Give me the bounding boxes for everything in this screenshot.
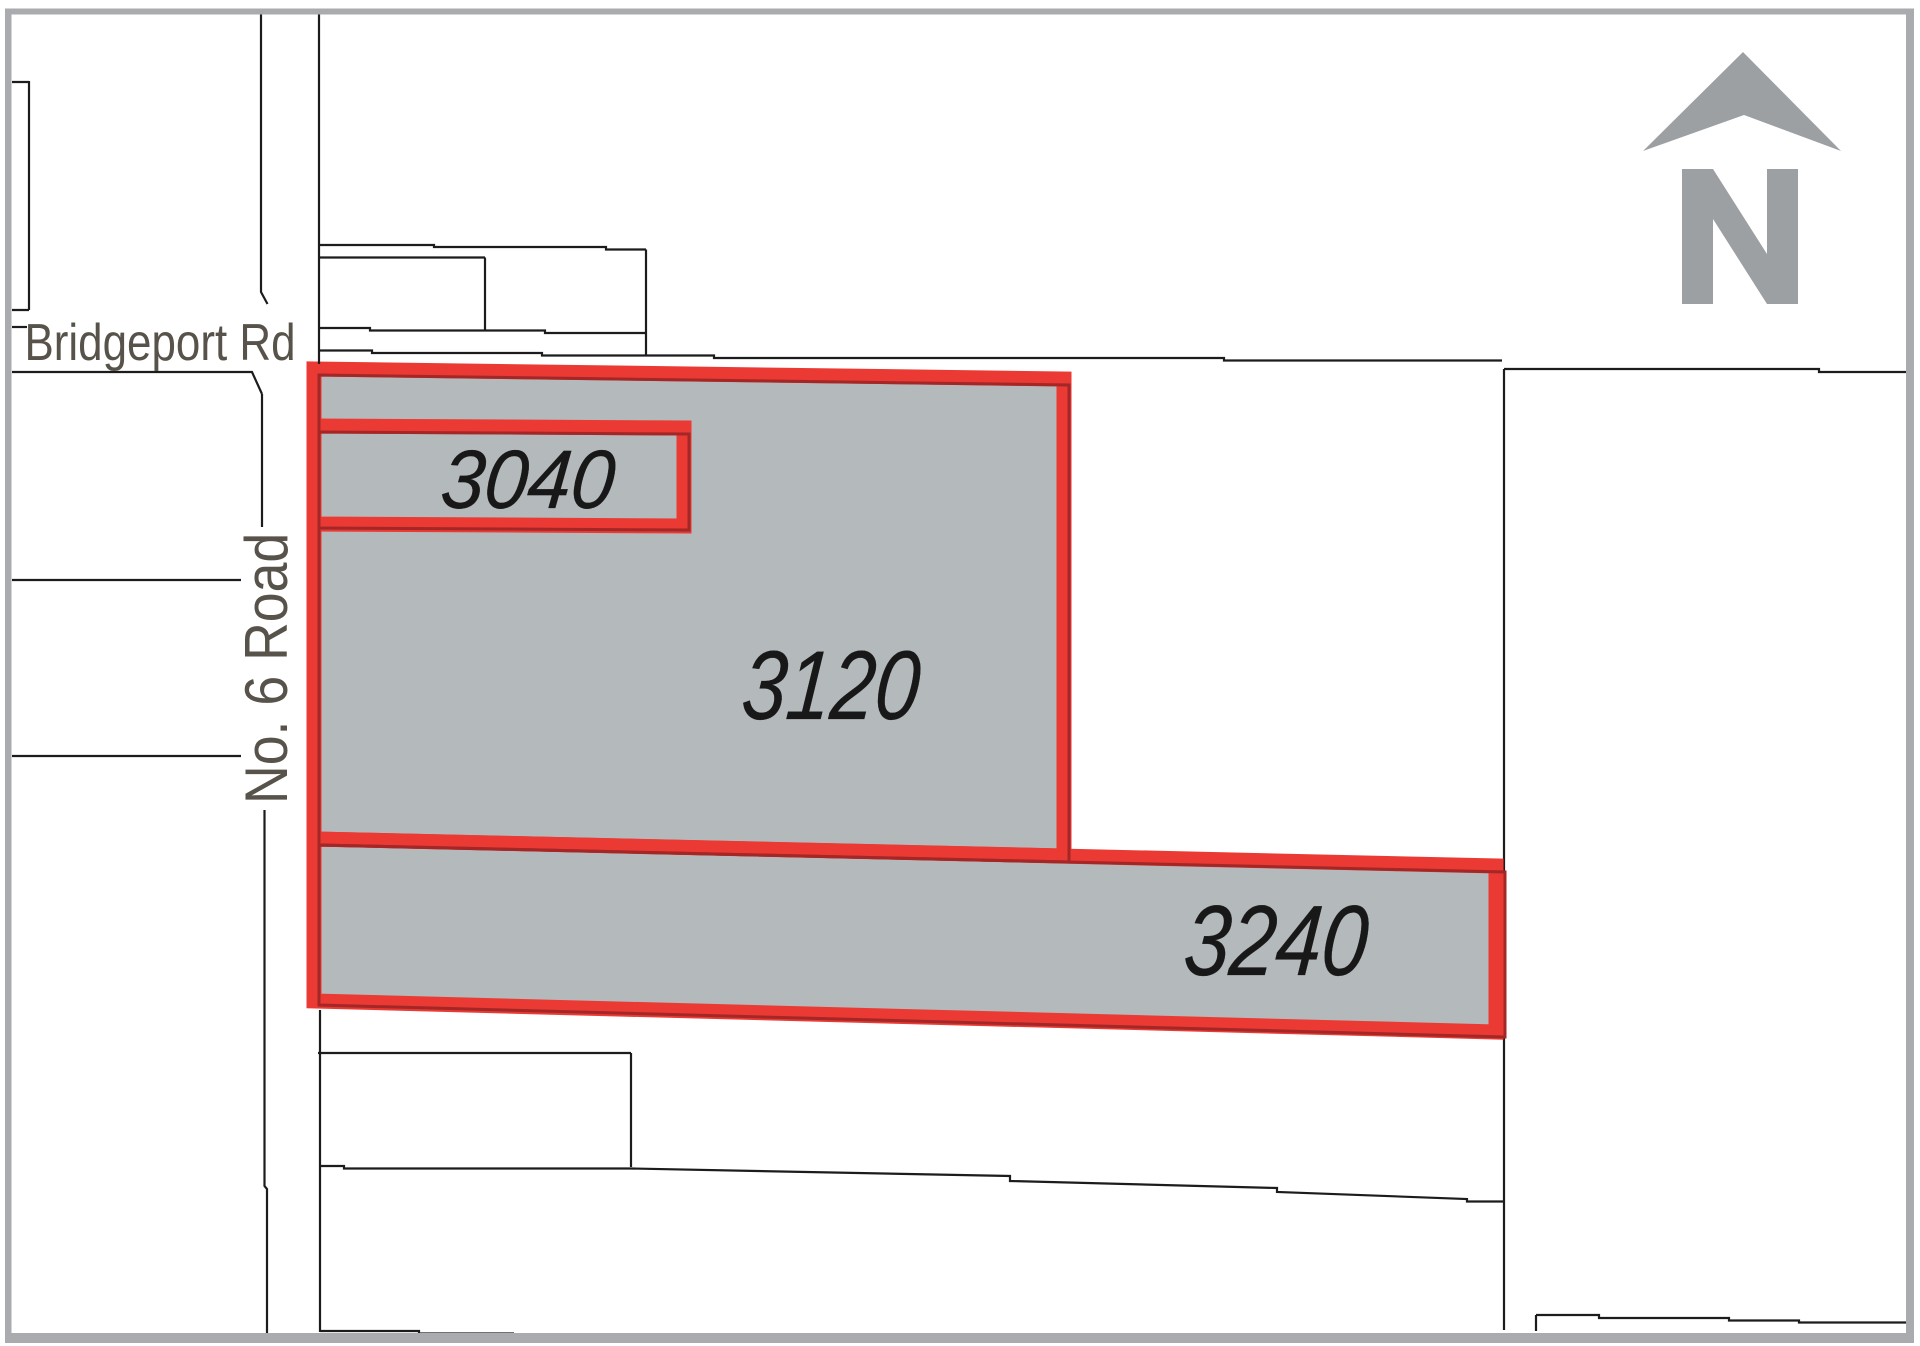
svg-text:Bridgeport Rd: Bridgeport Rd	[25, 314, 296, 372]
svg-text:3120: 3120	[738, 630, 924, 740]
svg-text:3240: 3240	[1180, 886, 1373, 997]
svg-text:3040: 3040	[437, 434, 619, 527]
svg-text:No. 6 Road: No. 6 Road	[233, 533, 300, 804]
